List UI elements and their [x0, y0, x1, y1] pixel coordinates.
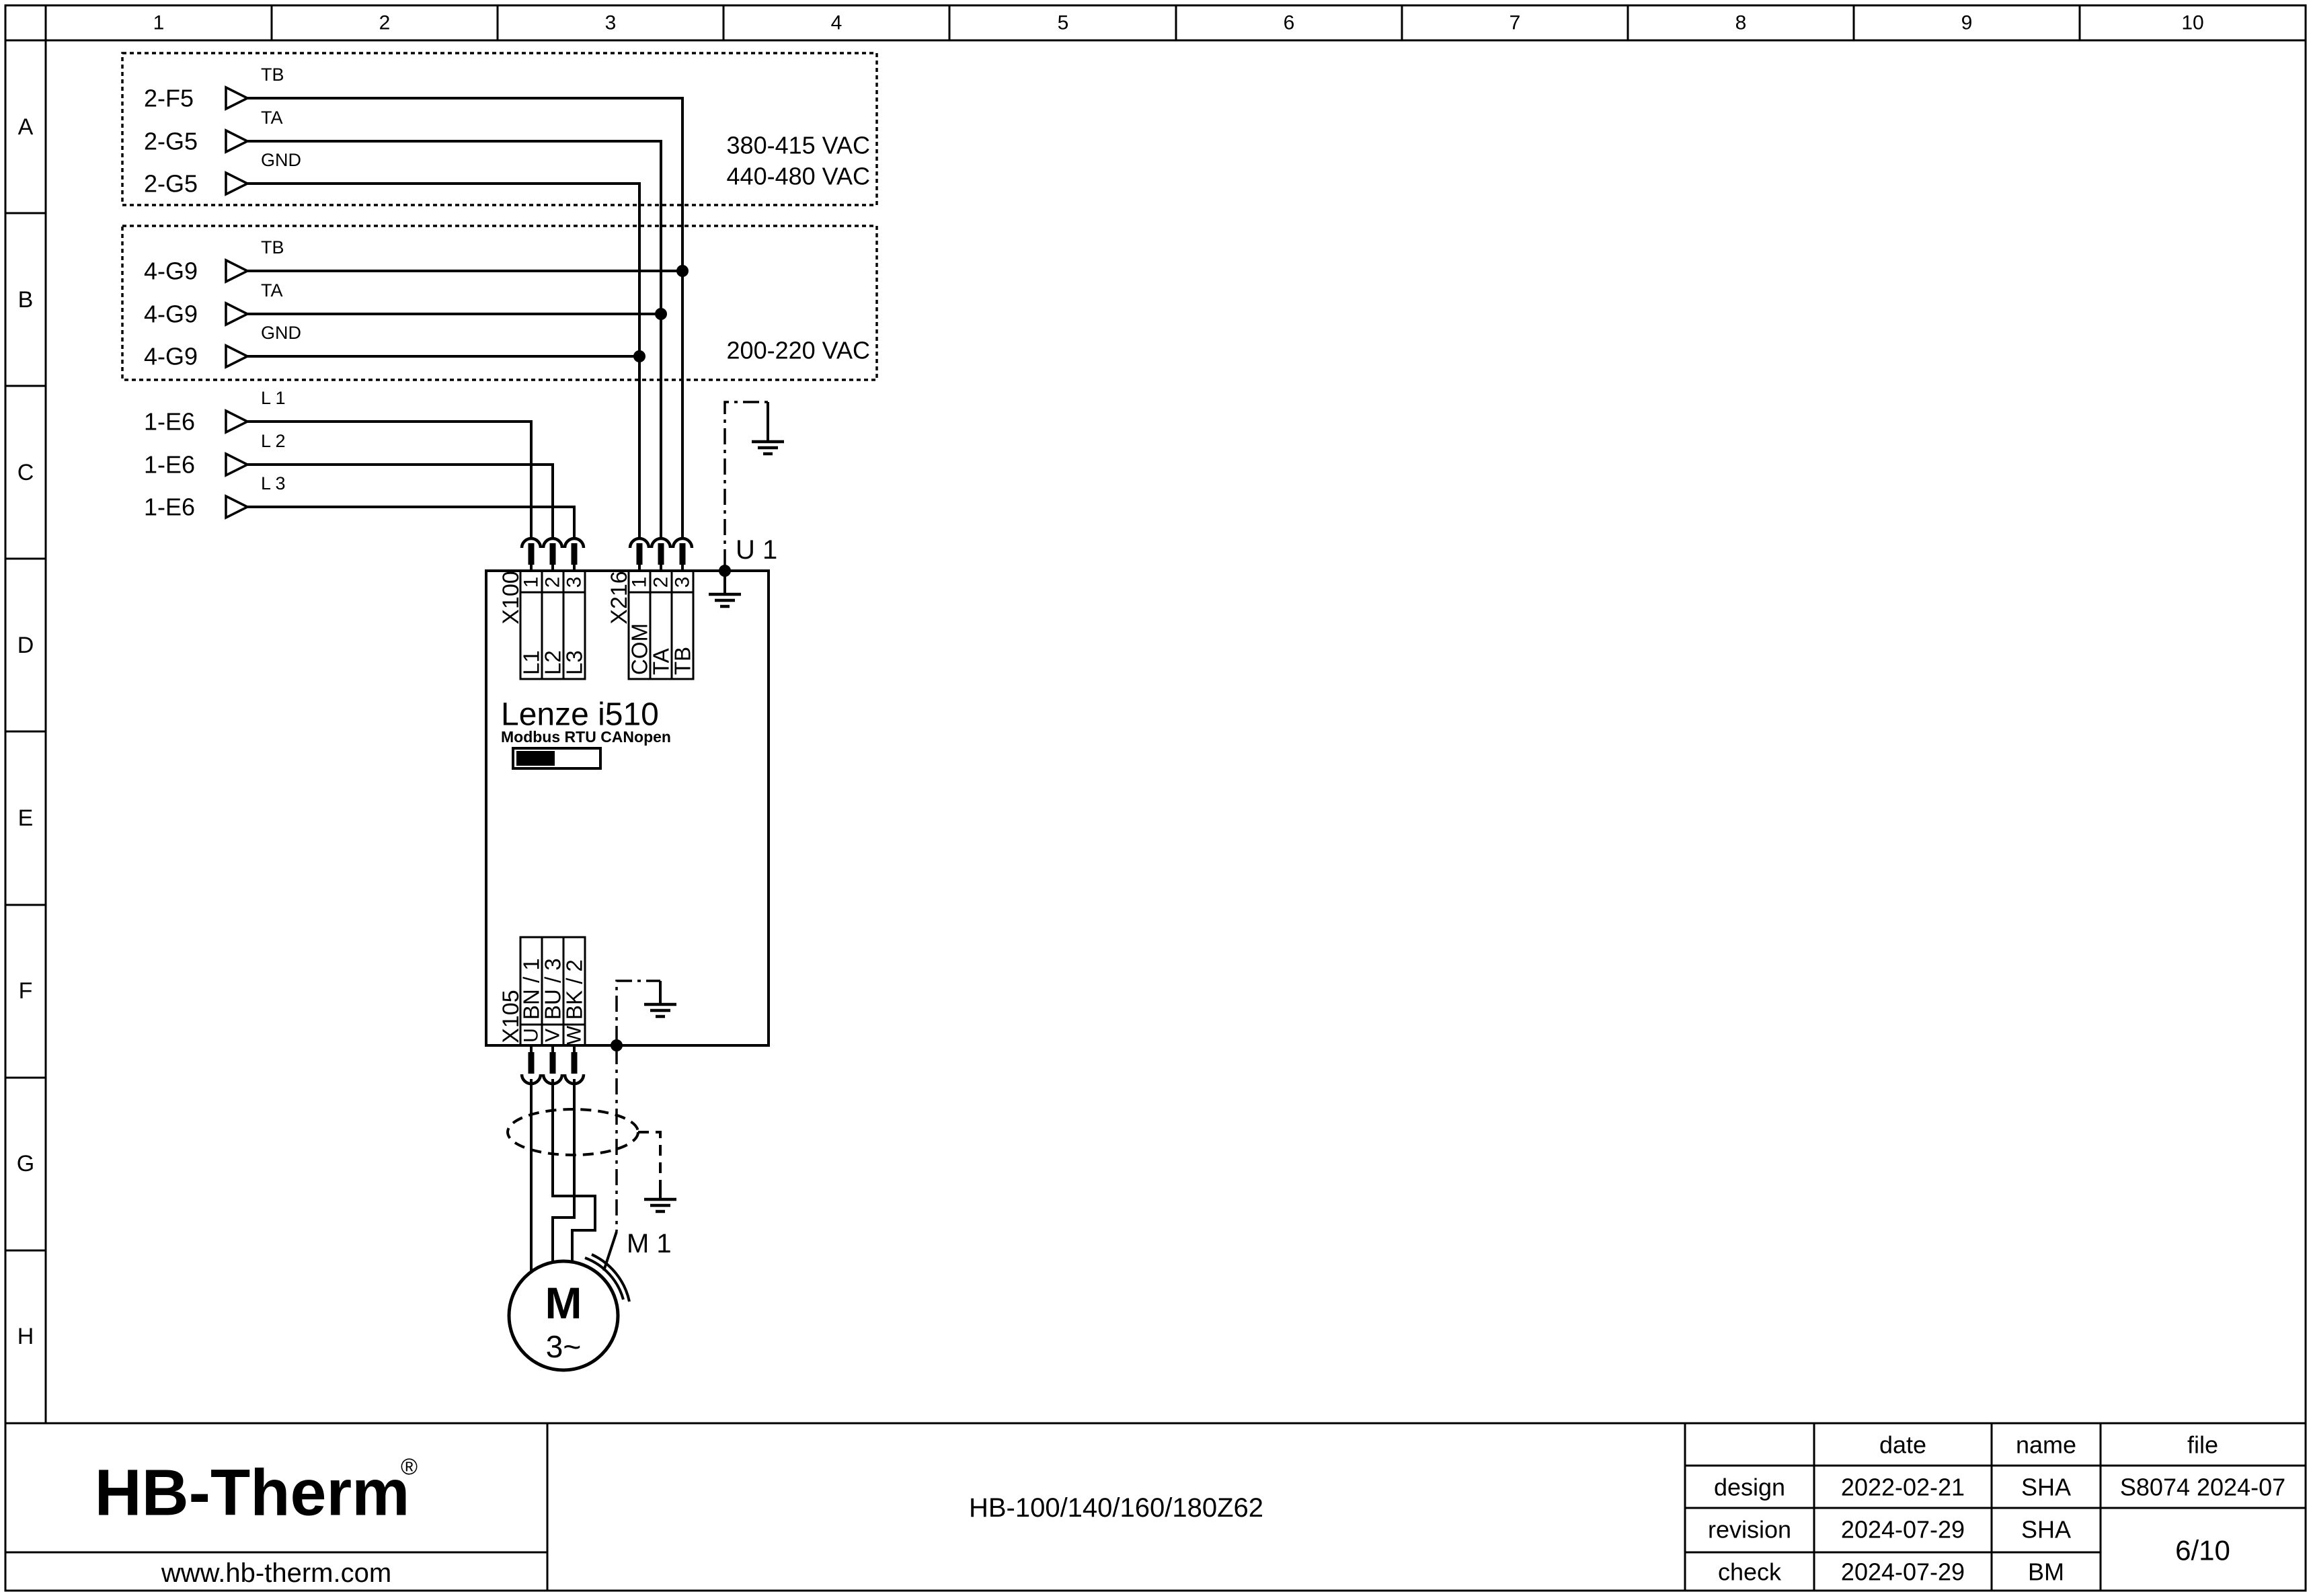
signal-source-arrow [226, 454, 247, 475]
terminal-pin: V [542, 1029, 564, 1042]
ruler-col-5: 5 [1058, 12, 1069, 34]
ruler-column-labels: 1 2 3 4 5 6 7 8 9 10 [153, 12, 2204, 34]
signal-source-arrow [226, 173, 247, 194]
terminal-pin: W [563, 1025, 586, 1045]
motor-letter: M [545, 1278, 582, 1328]
company-logo: HB-Therm ® [95, 1454, 418, 1529]
logo-text: HB-Therm [95, 1456, 410, 1529]
signal-source-arrow [226, 130, 247, 152]
earth-symbol [752, 442, 784, 454]
check-name: BM [2028, 1558, 2064, 1586]
terminal-block-x100: X100 1 2 3 L1 L2 L3 [498, 571, 587, 679]
junction-dot [719, 565, 731, 577]
ruler-row-d: D [17, 633, 34, 658]
input-wires [247, 98, 689, 539]
row-label-check: check [1718, 1558, 1782, 1586]
signal-label: TA [261, 280, 283, 301]
drive-name: Lenze i510 [501, 697, 659, 733]
logo-registered-mark: ® [401, 1454, 418, 1480]
drive-unit: X100 1 2 3 L1 L2 L3 X216 1 2 3 COM TA TB [486, 571, 769, 1045]
terminal-wire-label: L3 [562, 650, 587, 675]
signal-source-arrow [226, 346, 247, 367]
source-ref: 4-G9 [144, 301, 198, 328]
col-header-date: date [1879, 1431, 1926, 1459]
motor-designator: M 1 [627, 1229, 672, 1259]
source-ref: 4-G9 [144, 343, 198, 370]
check-date: 2024-07-29 [1841, 1558, 1965, 1586]
drawing-frame [5, 5, 2306, 1591]
terminal-pin: 1 [629, 577, 651, 588]
earth-symbol [644, 1199, 676, 1211]
source-group-1: 2-F5 2-G5 2-G5 TB TA GND 380-415 VAC 440… [144, 65, 870, 198]
ruler-col-9: 9 [1961, 12, 1973, 34]
signal-label: TB [261, 65, 284, 85]
drive-comm-label: Modbus RTU CANopen [501, 728, 671, 746]
terminal-pin: 1 [520, 577, 543, 588]
row-label-design: design [1714, 1474, 1785, 1501]
voltage-label: 440-480 VAC [727, 163, 870, 190]
motor-wires [531, 1084, 595, 1272]
voltage-label: 380-415 VAC [727, 132, 870, 159]
ruler-row-f: F [19, 978, 33, 1004]
signal-source-arrow [226, 87, 247, 109]
signal-label: L 1 [261, 388, 286, 408]
terminal-pin: 3 [672, 577, 694, 588]
row-label-revision: revision [1708, 1516, 1791, 1544]
drive-designator: U 1 [736, 535, 777, 565]
comm-selector-switch [513, 748, 600, 768]
terminal-pin: 2 [542, 577, 564, 588]
voltage-label: 200-220 VAC [727, 337, 870, 364]
signal-source-arrow [226, 303, 247, 325]
ruler-col-8: 8 [1735, 12, 1747, 34]
revision-name: SHA [2021, 1516, 2071, 1544]
motor-cable-connectors [522, 1045, 584, 1084]
ruler-col-2: 2 [379, 12, 391, 34]
signal-label: GND [261, 323, 301, 343]
revision-date: 2024-07-29 [1841, 1516, 1965, 1544]
ruler-row-g: G [17, 1151, 34, 1176]
design-name: SHA [2021, 1474, 2071, 1501]
terminal-wire-label: TB [670, 647, 695, 675]
pe-to-motor [604, 1039, 623, 1271]
source-ref: 4-G9 [144, 257, 198, 285]
junction-dot [633, 350, 645, 362]
junction-dot [676, 265, 689, 277]
terminal-pin: 3 [563, 577, 586, 588]
ruler-col-7: 7 [1510, 12, 1521, 34]
ruler-col-6: 6 [1284, 12, 1295, 34]
source-ref: 1-E6 [144, 451, 195, 479]
col-header-file: file [2187, 1431, 2218, 1459]
signal-source-arrow [226, 496, 247, 518]
signal-source-arrow [226, 411, 247, 432]
ruler-row-c: C [17, 460, 34, 485]
source-ref: 1-E6 [144, 493, 195, 521]
ruler-col-4: 4 [831, 12, 843, 34]
document-title: HB-100/140/160/180Z62 [969, 1493, 1263, 1523]
input-cable-connectors [522, 538, 692, 571]
ruler-col-1: 1 [153, 12, 165, 34]
ruler-col-3: 3 [605, 12, 617, 34]
terminal-pin: U [520, 1028, 543, 1043]
source-ref: 1-E6 [144, 408, 195, 436]
source-group-2: 4-G9 4-G9 4-G9 TB TA GND 200-220 VAC [144, 237, 870, 370]
ruler-row-h: H [17, 1324, 34, 1349]
ruler-row-a: A [18, 114, 34, 140]
source-ref: 2-G5 [144, 128, 198, 155]
motor-symbol: M 3~ [509, 1254, 629, 1370]
signal-label: L 3 [261, 473, 286, 493]
file-number: S8074 2024-07 [2120, 1474, 2285, 1501]
signal-label: L 2 [261, 431, 286, 451]
source-ref: 2-F5 [144, 85, 194, 112]
source-group-3: 1-E6 1-E6 1-E6 L 1 L 2 L 3 [144, 388, 286, 521]
signal-label: TB [261, 237, 284, 257]
signal-label: GND [261, 150, 301, 170]
junction-dot [655, 308, 667, 320]
ruler-row-b: B [18, 287, 34, 313]
website-text: www.hb-therm.com [161, 1558, 391, 1588]
terminal-block-x105: X105 BN / 1 BU / 3 BK / 2 U V W [498, 937, 587, 1045]
source-ref: 2-G5 [144, 170, 198, 198]
terminal-wire-label: BK / 2 [562, 959, 587, 1020]
terminal-pin: 2 [650, 577, 672, 588]
ruler-col-10: 10 [2181, 12, 2203, 34]
col-header-name: name [2016, 1431, 2076, 1459]
sheet-number: 6/10 [2175, 1535, 2230, 1566]
ruler-row-e: E [18, 805, 34, 831]
motor-phase-label: 3~ [546, 1329, 581, 1364]
drive-internal-pe-bottom [617, 981, 676, 1042]
title-block: HB-Therm ® www.hb-therm.com HB-100/140/1… [5, 1423, 2306, 1591]
signal-source-arrow [226, 260, 247, 282]
terminal-block-x216: X216 1 2 3 COM TA TB [606, 571, 695, 679]
design-date: 2022-02-21 [1841, 1474, 1965, 1501]
schematic-sheet: 1 2 3 4 5 6 7 8 9 10 A B C D E F G H 2-F… [0, 0, 2311, 1596]
signal-label: TA [261, 108, 283, 128]
